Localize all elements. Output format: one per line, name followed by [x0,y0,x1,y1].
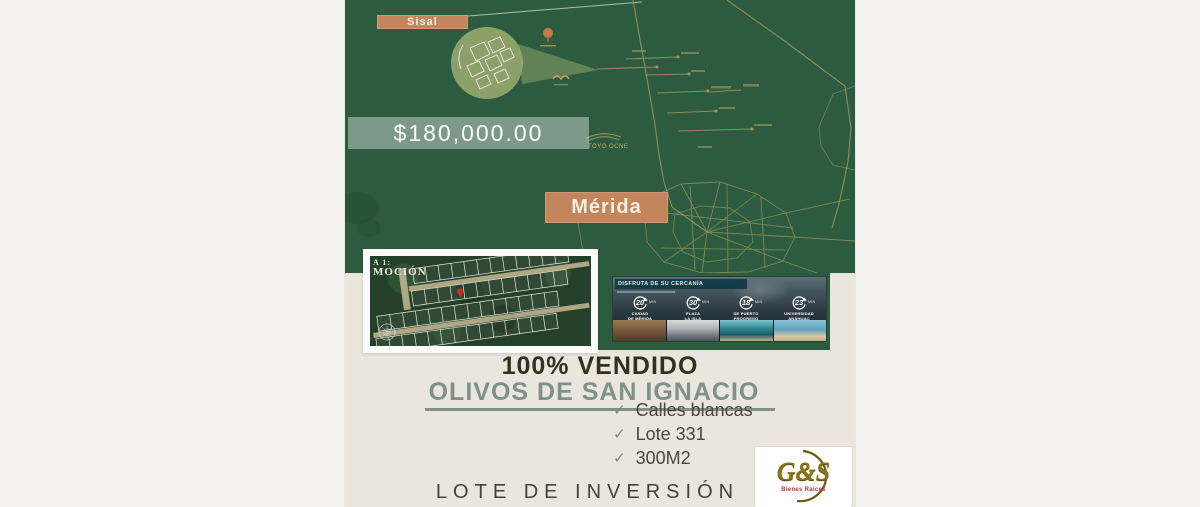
map-micro-labels [632,50,772,148]
location-photo-plaza [667,320,720,341]
badge-unit: MIN [808,300,815,304]
check-icon: ✓ [613,425,626,443]
map-label-merida: Mérida [545,192,668,223]
proximity-banner: DISFRUTA DE SU CERCANÍA 20 MIN CIUDADDE … [613,277,826,341]
lot-zoom-circle [451,27,598,99]
feature-text: Calles blancas [636,400,753,421]
tree-icon [540,28,556,47]
badge-value: 20 [632,298,648,307]
proximity-title: DISFRUTA DE SU CERCANÍA [615,279,747,289]
map-label-sisal: Sisal [377,15,468,29]
check-icon: ✓ [613,449,626,467]
location-photo-city [613,320,666,341]
feature-list: ✓Calles blancas ✓Lote 331 ✓300M2 [613,398,753,470]
price-tag: $180,000.00 [348,117,589,149]
aerial-photo: A 1: MOCIÓN [370,256,591,346]
check-icon: ✓ [613,401,626,419]
circular-arrow-icon: 18 [738,295,754,311]
feature-item: ✓Calles blancas [613,398,753,422]
landmark-label: TOYO OCNE [588,144,628,150]
inset-caption: A 1: MOCIÓN [373,259,427,279]
lot-aerial-inset: A 1: MOCIÓN [363,249,598,353]
badge-unit: MIN [755,300,762,304]
price-text: $180,000.00 [394,120,544,147]
brand-logo: G&S Bienes Raíces [755,447,852,507]
feature-item: ✓300M2 [613,446,753,470]
sisal-label-text: Sisal [407,16,438,28]
project-title: OLIVOS DE SAN IGNACIO [345,378,855,411]
zone-outline [819,86,855,170]
circular-arrow-icon: 23 [791,295,807,311]
circular-arrow-icon: 20 [632,295,648,311]
location-photos-row [613,320,826,341]
badge-value: 30 [685,298,701,307]
badge-value: 18 [738,298,754,307]
inset-caption-line2: MOCIÓN [373,267,427,279]
listing-flyer: TOYO OCNE Sisal $180,000.00 Mérida DISFR… [345,0,855,507]
location-photo-pier [720,320,773,341]
circular-arrow-icon: 30 [685,295,701,311]
proximity-subtitle-line [617,291,675,293]
feature-text: Lote 331 [636,424,706,445]
feature-text: 300M2 [636,448,691,469]
feature-item: ✓Lote 331 [613,422,753,446]
badge-unit: MIN [649,300,656,304]
location-photo-beach [774,320,827,341]
badge-value: 23 [791,298,807,307]
landmark-logo: TOYO OCNE [587,134,628,150]
badge-unit: MIN [702,300,709,304]
brand-tagline: Bienes Raíces [755,487,852,493]
vegetation-blob [357,219,381,237]
merida-label-text: Mérida [571,196,641,219]
region-map: TOYO OCNE Sisal $180,000.00 Mérida [345,0,855,273]
brand-name: G&S [755,457,852,487]
sold-banner: 100% VENDIDO [345,352,855,381]
vegetation-blob [345,192,379,224]
